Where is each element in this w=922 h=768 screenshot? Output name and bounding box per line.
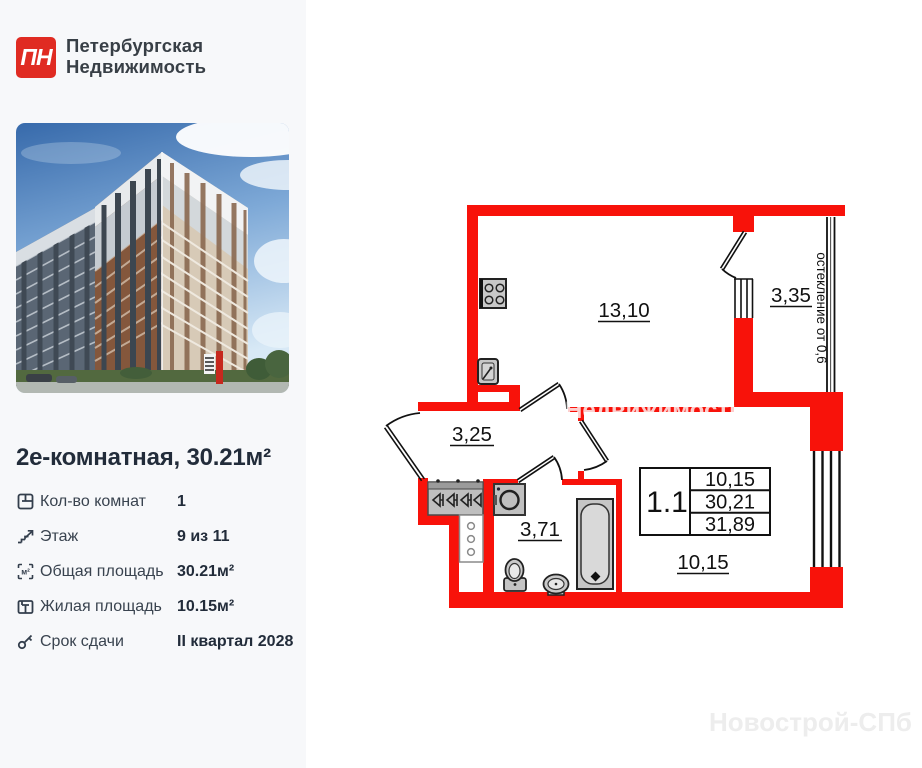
svg-text:Недвижимость: Недвижимость [565, 397, 744, 424]
svg-text:Новострой-СПб: Новострой-СПб [709, 707, 912, 737]
svg-text:10,15: 10,15 [677, 551, 728, 574]
svg-text:31,89: 31,89 [705, 514, 755, 536]
svg-text:1.1: 1.1 [646, 486, 688, 519]
svg-text:30,21: 30,21 [705, 492, 755, 514]
svg-text:10,15: 10,15 [705, 469, 755, 491]
svg-text:13,10: 13,10 [598, 299, 649, 322]
svg-text:3,25: 3,25 [452, 423, 492, 446]
svg-text:3,71: 3,71 [520, 518, 560, 541]
svg-text:3,35: 3,35 [771, 284, 811, 307]
svg-text:остекление от 0,6: остекление от 0,6 [814, 252, 829, 363]
